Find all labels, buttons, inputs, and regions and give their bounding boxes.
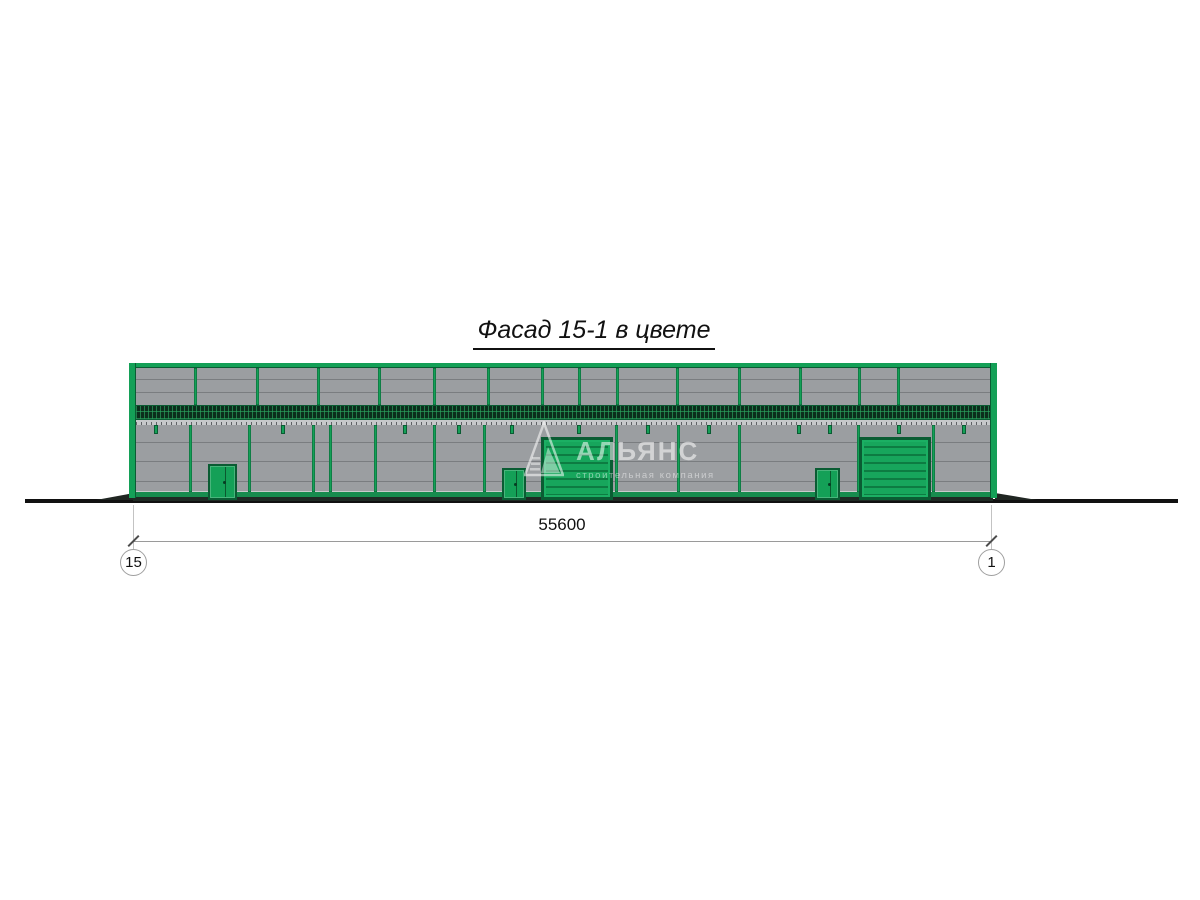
building-left-frame <box>129 363 136 498</box>
glazing-mullion <box>194 368 197 405</box>
glazing-mullion <box>616 368 619 405</box>
wall-mullion <box>433 425 436 492</box>
column-stub <box>646 425 650 434</box>
glazing-mullion <box>378 368 381 405</box>
wall-mullion <box>483 425 486 492</box>
garage-door-right <box>859 437 931 500</box>
column-stub <box>510 425 514 434</box>
wall-mullion <box>312 425 315 492</box>
wall-mullion <box>677 425 680 492</box>
glazing-mullion <box>897 368 900 405</box>
glazing-mullion <box>676 368 679 405</box>
glazing-mullion <box>256 368 259 405</box>
extension-line-left <box>133 505 134 552</box>
column-stub <box>457 425 461 434</box>
clerestory-window-band <box>136 405 990 420</box>
glazing-mullion <box>317 368 320 405</box>
glazing-mullion <box>858 368 861 405</box>
ground-ramp-right <box>995 493 1037 500</box>
door-right <box>815 468 840 500</box>
wall-mullion <box>248 425 251 492</box>
door-knob <box>828 483 831 486</box>
glazing-mullion <box>487 368 490 405</box>
glazing-mullion <box>578 368 581 405</box>
column-stub <box>828 425 832 434</box>
garage-door-center <box>541 437 613 500</box>
axis-marker-1: 1 <box>978 549 1005 576</box>
drawing-title: Фасад 15-1 в цвете <box>0 316 1188 350</box>
dimension-line <box>133 541 991 542</box>
column-stub <box>281 425 285 434</box>
building-facade <box>129 363 997 501</box>
extension-line-right <box>991 505 992 552</box>
wall-mullion <box>738 425 741 492</box>
column-stub <box>707 425 711 434</box>
column-stub <box>897 425 901 434</box>
door-knob <box>223 481 226 484</box>
wall-mullion <box>932 425 935 492</box>
panel-joint-line <box>136 392 990 393</box>
column-stub <box>962 425 966 434</box>
glazing-mullion <box>738 368 741 405</box>
axis-marker-15: 15 <box>120 549 147 576</box>
column-stub <box>154 425 158 434</box>
top-glazing-section <box>136 368 990 405</box>
door-left <box>208 464 237 500</box>
wall-mullion <box>189 425 192 492</box>
column-stub <box>403 425 407 434</box>
wall-mullion <box>615 425 618 492</box>
dimension-value: 55600 <box>462 515 662 535</box>
wall-mullion <box>374 425 377 492</box>
column-stub <box>577 425 581 434</box>
glazing-mullion <box>799 368 802 405</box>
axis-marker-1-label: 1 <box>987 554 995 571</box>
drawing-title-text: Фасад 15-1 в цвете <box>473 316 714 350</box>
axis-marker-15-label: 15 <box>125 554 142 571</box>
glazing-mullion <box>433 368 436 405</box>
glazing-mullion <box>541 368 544 405</box>
wall-mullion <box>329 425 332 492</box>
drawing-canvas: Фасад 15-1 в цвете АЛЬЯНС строител <box>0 0 1200 900</box>
column-stub <box>797 425 801 434</box>
panel-joint-line <box>136 379 990 380</box>
building-right-frame <box>990 363 997 498</box>
roof-parapet-line <box>129 363 997 368</box>
door-center <box>502 468 526 500</box>
